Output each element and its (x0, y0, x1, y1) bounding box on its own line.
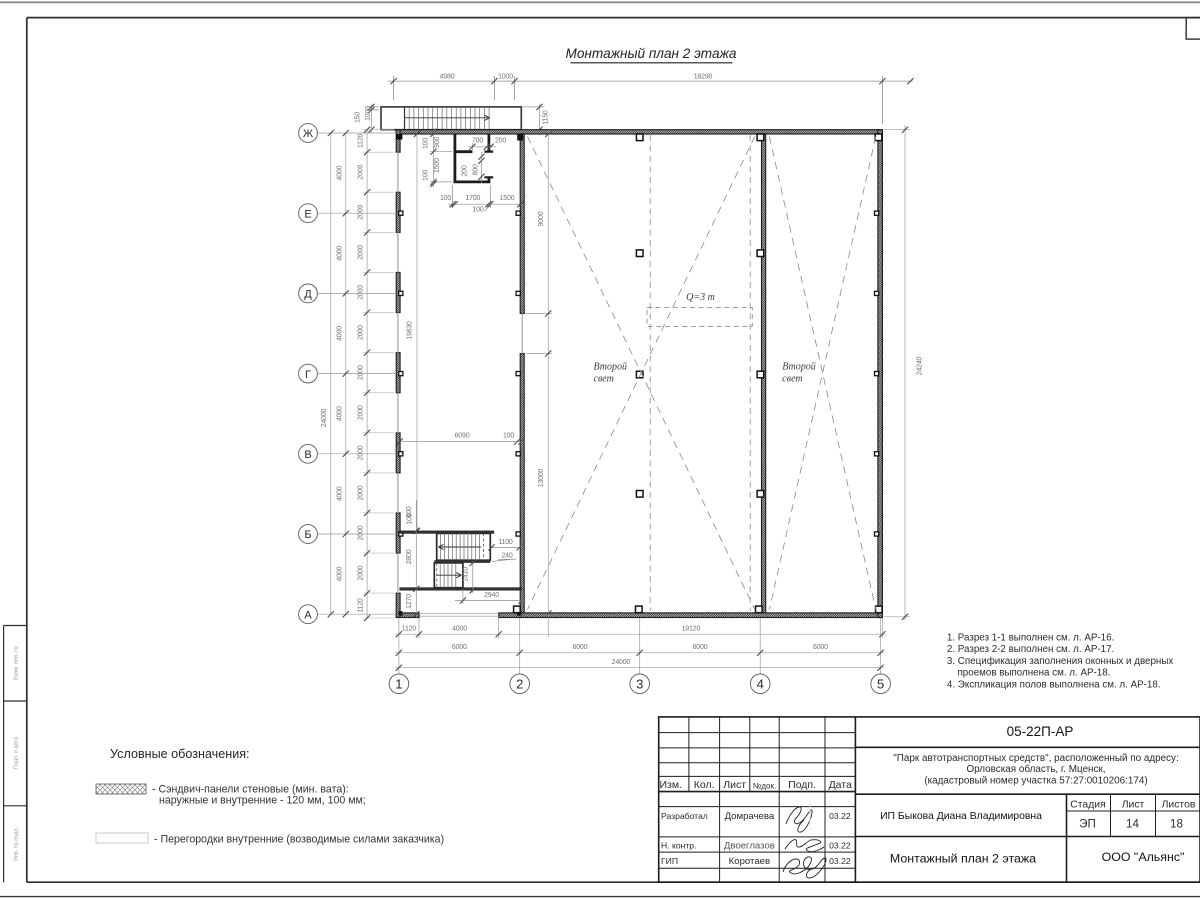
svg-text:2000: 2000 (357, 325, 364, 340)
svg-text:В: В (304, 449, 311, 461)
svg-text:1: 1 (395, 676, 402, 691)
svg-text:6090: 6090 (455, 433, 470, 440)
svg-text:Инв. № подл.: Инв. № подл. (14, 826, 20, 861)
svg-text:6000: 6000 (813, 644, 828, 651)
svg-text:1000: 1000 (365, 106, 372, 121)
svg-text:4000: 4000 (336, 566, 343, 581)
svg-text:Домрачева: Домрачева (725, 811, 775, 822)
svg-text:ИП Быкова Диана Владимировна: ИП Быкова Диана Владимировна (880, 811, 1042, 822)
svg-text:9000: 9000 (538, 211, 545, 226)
svg-text:ООО "Альянс": ООО "Альянс" (1102, 850, 1185, 864)
svg-text:03.22: 03.22 (829, 811, 851, 821)
svg-text:1120: 1120 (357, 133, 364, 148)
svg-text:ЭП: ЭП (1079, 818, 1096, 831)
svg-text:2940: 2940 (484, 592, 499, 599)
svg-text:Г: Г (305, 369, 311, 381)
svg-text:свет: свет (782, 374, 802, 385)
svg-text:(кадастровый номер участка 57:: (кадастровый номер участка 57:27:0010206… (924, 776, 1147, 787)
svg-text:4000: 4000 (336, 406, 343, 421)
svg-text:3: 3 (636, 676, 643, 691)
svg-text:Взам. инв. №: Взам. инв. № (14, 646, 20, 680)
svg-text:2000: 2000 (357, 525, 364, 540)
svg-text:200: 200 (495, 137, 506, 144)
svg-text:100: 100 (472, 207, 483, 214)
svg-text:19120: 19120 (682, 626, 701, 633)
svg-text:700: 700 (472, 137, 483, 144)
svg-text:100: 100 (503, 433, 514, 440)
svg-text:Второй: Второй (782, 362, 815, 373)
svg-text:Коротаев: Коротаев (729, 856, 770, 867)
svg-text:3. Спецификация заполнения око: 3. Спецификация заполнения оконных и две… (947, 656, 1173, 667)
svg-text:200: 200 (462, 165, 469, 176)
svg-text:1500: 1500 (500, 195, 515, 202)
svg-text:Орловская область, г. Мценск,: Орловская область, г. Мценск, (966, 764, 1105, 775)
svg-text:Монтажный план 2 этажа: Монтажный план 2 этажа (890, 852, 1036, 866)
svg-text:1700: 1700 (465, 195, 480, 202)
svg-text:2: 2 (516, 676, 523, 691)
svg-text:2000: 2000 (357, 405, 364, 420)
svg-text:05-22П-АР: 05-22П-АР (1007, 724, 1074, 739)
svg-text:Кол.: Кол. (694, 779, 715, 791)
svg-text:5: 5 (877, 676, 884, 691)
svg-text:18290: 18290 (694, 74, 713, 81)
svg-text:4000: 4000 (336, 165, 343, 180)
svg-text:Второй: Второй (594, 362, 627, 373)
svg-text:4000: 4000 (336, 326, 343, 341)
svg-text:Двоеглазов: Двоеглазов (724, 841, 775, 852)
svg-text:4: 4 (757, 676, 764, 691)
svg-text:1100: 1100 (498, 539, 513, 546)
svg-text:2000: 2000 (357, 165, 364, 180)
svg-text:- Перегородки внутренние (возв: - Перегородки внутренние (возводимые сил… (154, 833, 444, 845)
svg-text:Дата: Дата (829, 779, 852, 791)
svg-text:24000: 24000 (612, 659, 631, 666)
svg-text:1410: 1410 (463, 567, 470, 582)
svg-text:800: 800 (472, 164, 479, 175)
svg-text:№док.: №док. (753, 781, 776, 790)
svg-text:Изм.: Изм. (660, 779, 683, 791)
svg-text:Монтажный план 2 этажа: Монтажный план 2 этажа (566, 46, 737, 61)
svg-text:14: 14 (1126, 818, 1139, 831)
svg-text:1. Разрез 1-1 выполнен см. л.: 1. Разрез 1-1 выполнен см. л. АР-16. (947, 632, 1114, 643)
svg-text:1000: 1000 (498, 74, 513, 81)
svg-text:100: 100 (440, 195, 451, 202)
svg-text:1120: 1120 (402, 626, 417, 633)
svg-text:2000: 2000 (357, 245, 364, 260)
svg-text:4. Экспликация полов выполнена: 4. Экспликация полов выполнена см. л. АР… (947, 679, 1161, 690)
svg-text:2800: 2800 (406, 549, 413, 564)
svg-text:2000: 2000 (357, 285, 364, 300)
svg-text:1120: 1120 (357, 598, 364, 613)
svg-text:6000: 6000 (573, 644, 588, 651)
svg-text:100: 100 (423, 169, 430, 180)
svg-text:Стадия: Стадия (1070, 800, 1105, 811)
svg-text:4000: 4000 (452, 626, 467, 633)
svg-text:ГИП: ГИП (661, 856, 678, 866)
svg-text:100: 100 (423, 138, 430, 149)
svg-text:2000: 2000 (357, 205, 364, 220)
svg-text:13000: 13000 (538, 468, 545, 487)
svg-text:2. Разрез 2-2 выполнен см. л.: 2. Разрез 2-2 выполнен см. л. АР-17. (947, 644, 1114, 655)
svg-text:Ж: Ж (303, 128, 313, 140)
svg-text:1150: 1150 (543, 110, 550, 125)
svg-text:Б: Б (304, 529, 311, 541)
svg-text:Подп. и дата: Подп. и дата (14, 736, 20, 769)
svg-text:Разработал: Разработал (661, 811, 708, 821)
svg-text:03.22: 03.22 (829, 841, 851, 851)
svg-text:1500: 1500 (434, 158, 441, 173)
svg-text:Листов: Листов (1162, 800, 1196, 811)
svg-text:6000: 6000 (693, 644, 708, 651)
svg-text:свет: свет (594, 374, 614, 385)
svg-text:проемов выполнена см. л. АР-18: проемов выполнена см. л. АР-18. (958, 668, 1111, 679)
svg-text:03.22: 03.22 (829, 856, 851, 866)
svg-text:4000: 4000 (336, 486, 343, 501)
svg-text:Лист: Лист (1122, 800, 1145, 811)
svg-text:2000: 2000 (357, 485, 364, 500)
svg-text:Д: Д (304, 289, 312, 301)
svg-text:Подп.: Подп. (788, 779, 816, 791)
svg-text:100: 100 (406, 506, 413, 517)
svg-text:1270: 1270 (406, 594, 413, 609)
svg-text:Условные обозначения:: Условные обозначения: (110, 747, 250, 761)
svg-text:24000: 24000 (321, 408, 328, 427)
svg-text:2000: 2000 (357, 365, 364, 380)
svg-text:Н. контр.: Н. контр. (661, 841, 696, 851)
svg-text:Е: Е (304, 208, 311, 220)
svg-text:Q=3 т: Q=3 т (686, 292, 715, 303)
svg-text:4000: 4000 (336, 246, 343, 261)
svg-text:150: 150 (355, 112, 362, 123)
svg-text:Лист: Лист (723, 779, 746, 791)
svg-text:4980: 4980 (440, 74, 455, 81)
svg-text:наружные и внутренние - 120 мм: наружные и внутренние - 120 мм, 100 мм; (159, 795, 366, 807)
svg-text:2000: 2000 (357, 445, 364, 460)
svg-text:18: 18 (1170, 818, 1183, 831)
svg-text:24240: 24240 (917, 356, 924, 375)
svg-text:240: 240 (501, 553, 512, 560)
svg-text:6000: 6000 (452, 644, 467, 651)
svg-text:19830: 19830 (407, 321, 414, 340)
svg-text:А: А (304, 609, 312, 621)
svg-text:"Парк автотранспортных средств: "Парк автотранспортных средств", располо… (893, 753, 1178, 764)
svg-text:2000: 2000 (357, 565, 364, 580)
svg-text:900: 900 (434, 136, 441, 147)
